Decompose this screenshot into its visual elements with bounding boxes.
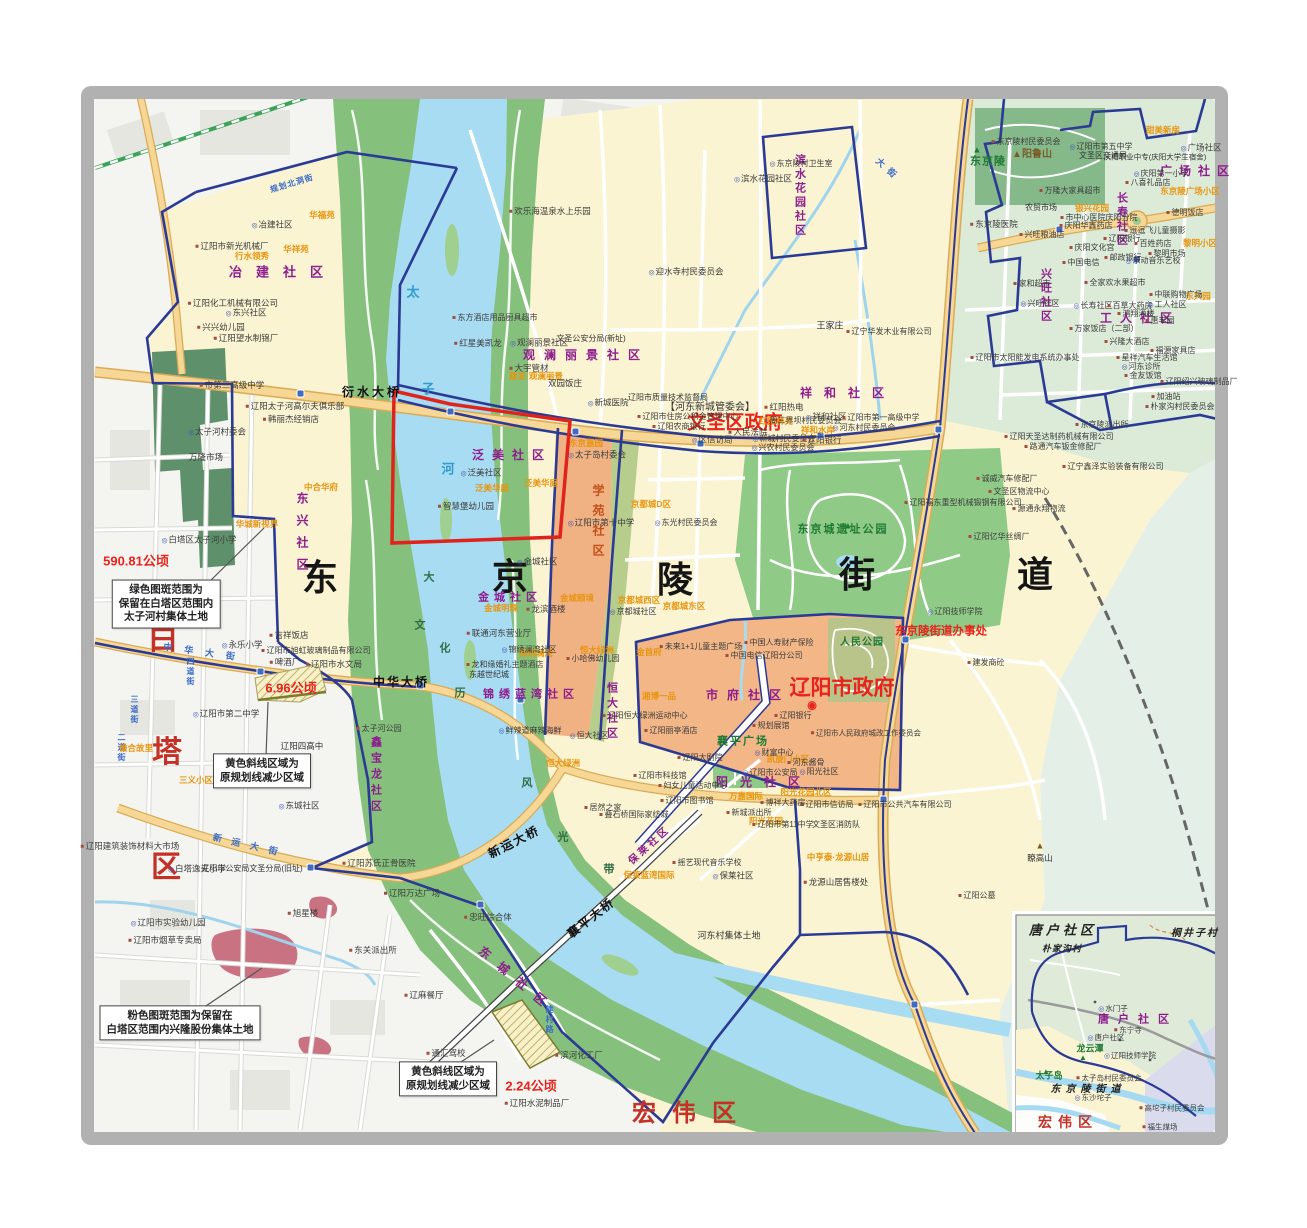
map-frame (81, 86, 1228, 1145)
map-page: 东京陵街道白塔区宏伟区宏伟区文圣区政府辽阳市政府◉东京陵街道办事处衍水大桥中华大… (0, 0, 1307, 1228)
